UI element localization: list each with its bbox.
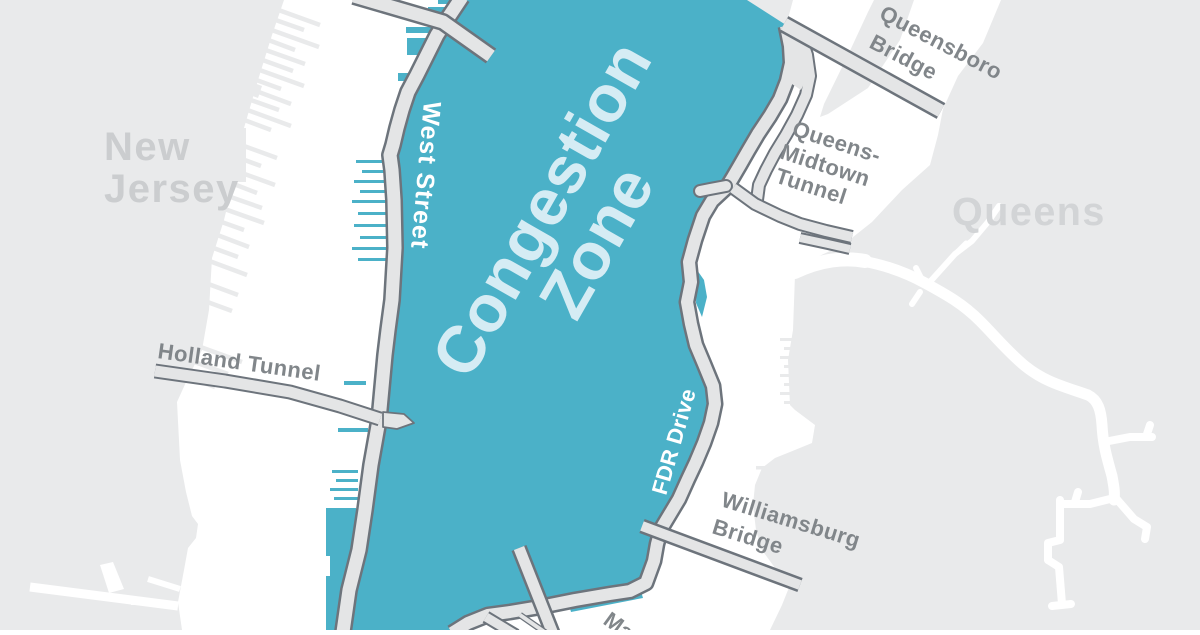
- svg-text:Jersey: Jersey: [104, 167, 240, 211]
- svg-text:New: New: [104, 125, 191, 169]
- svg-text:Queens: Queens: [952, 190, 1106, 234]
